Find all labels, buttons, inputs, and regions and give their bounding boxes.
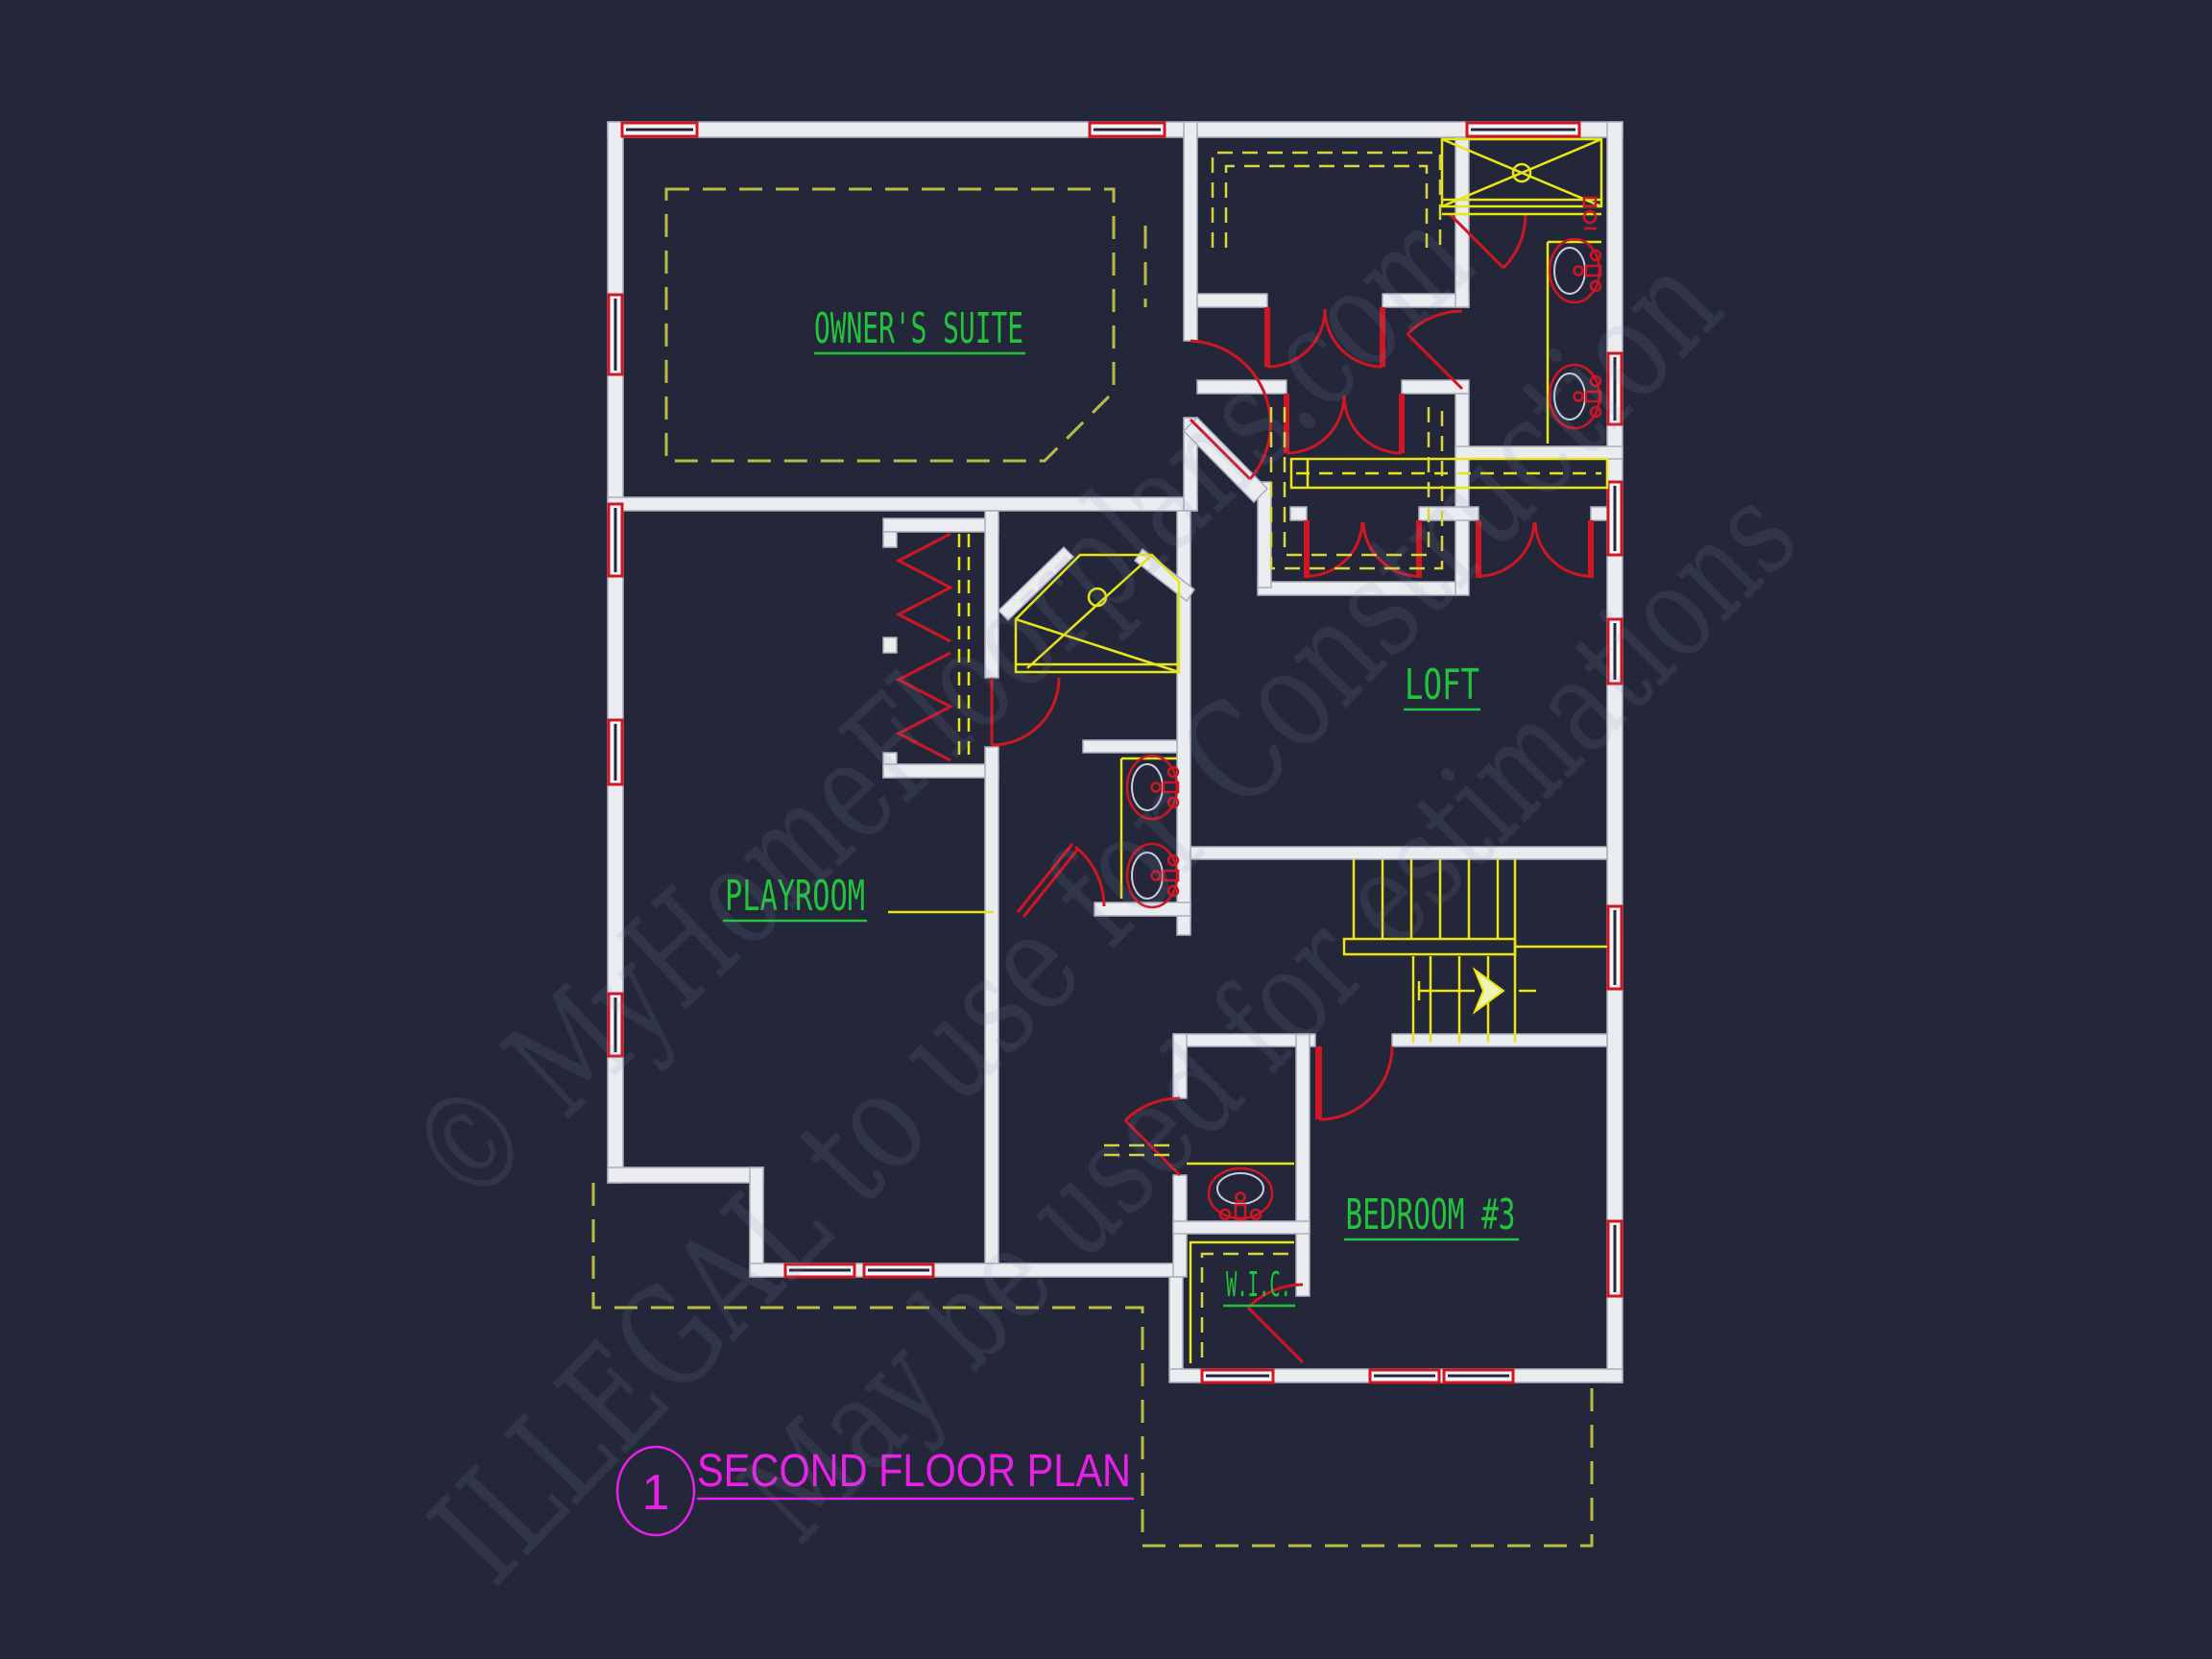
window (622, 123, 697, 136)
label-wic: W.I.C. (1226, 1265, 1291, 1305)
window (609, 504, 622, 576)
window (1370, 1370, 1439, 1382)
window (609, 720, 622, 784)
floor-plan-drawing: OWNER'S SUITE LOFT PLAYROOM BEDROOM #3 W… (0, 0, 2212, 1659)
window (1090, 123, 1165, 136)
label-bedroom-3: BEDROOM #3 (1346, 1190, 1516, 1239)
window (1608, 1221, 1622, 1296)
window (1467, 123, 1579, 136)
window (1202, 1370, 1273, 1382)
stairs-direction-arrow (1419, 970, 1536, 1012)
window (1444, 1370, 1513, 1382)
window (1608, 482, 1622, 555)
window (609, 295, 622, 374)
sink-bed-bath (1209, 1168, 1272, 1219)
floor-plan-canvas: OWNER'S SUITE LOFT PLAYROOM BEDROOM #3 W… (0, 0, 2212, 1659)
label-owners-suite: OWNER'S SUITE (814, 304, 1023, 353)
window (1608, 906, 1622, 989)
